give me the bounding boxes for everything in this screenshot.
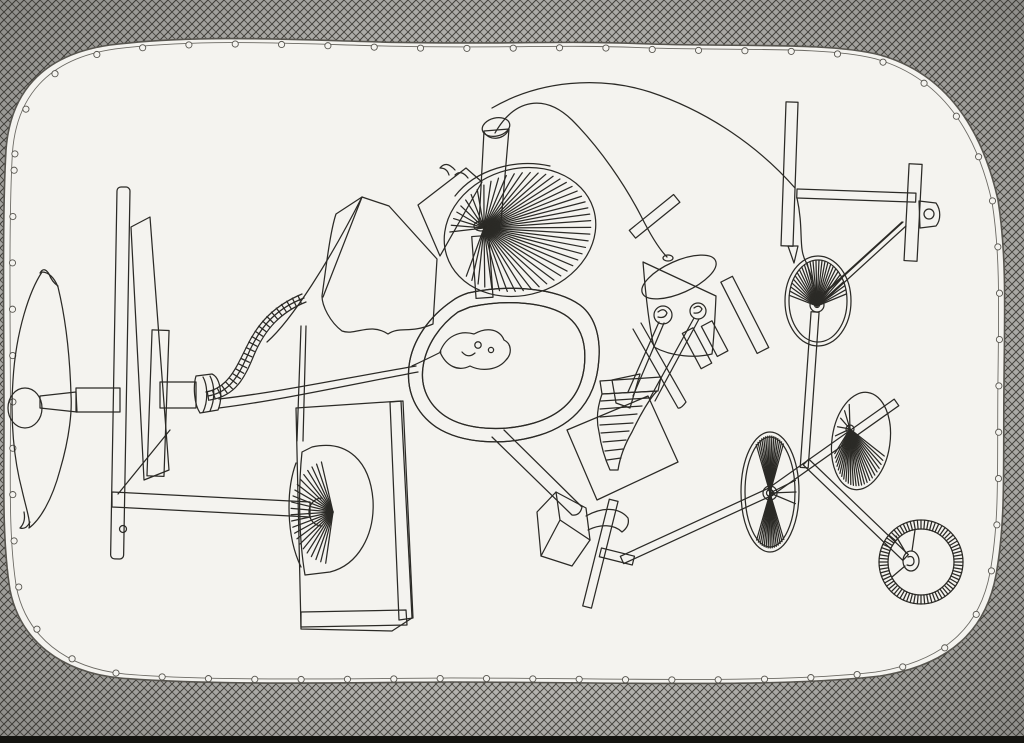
bottom-black-band: [0, 736, 1024, 743]
machine-sketch-svg: [0, 0, 1024, 743]
ink-drawing-canvas: [0, 0, 1024, 743]
